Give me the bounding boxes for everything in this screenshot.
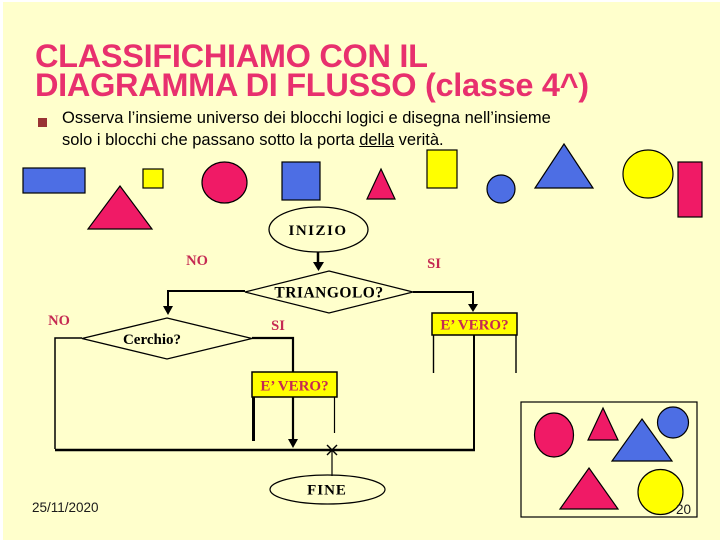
truth-gate-left-label: E’ VERO? <box>260 379 328 395</box>
decision2-no-label: NO <box>48 313 70 329</box>
connector-decision1-si <box>413 292 473 304</box>
universe-shape-magenta-rectangle <box>678 162 702 217</box>
flowchart-nodes <box>82 207 517 504</box>
result-shape-magenta-triangle-small <box>588 408 618 440</box>
slide-date: 25/11/2020 <box>32 500 99 515</box>
universe-shapes-row <box>23 144 702 229</box>
decision2-label: Cerchio? <box>123 332 181 348</box>
result-shape-magenta-triangle-large <box>560 468 618 509</box>
result-shape-blue-circle <box>658 407 689 438</box>
decision1-no-label: NO <box>186 253 208 269</box>
result-shape-magenta-circle <box>535 413 574 457</box>
connector-decision2-si <box>252 338 293 372</box>
universe-shape-blue-rectangle <box>23 168 85 193</box>
decision1-si-label: SI <box>427 256 441 272</box>
truth-gate-right-label: E’ VERO? <box>440 318 508 334</box>
universe-shape-blue-square <box>282 162 320 200</box>
universe-shape-magenta-triangle-large <box>88 186 152 229</box>
flowchart-canvas: INIZIO TRIANGOLO? Cerchio? NO SI NO SI E… <box>0 0 720 540</box>
flowchart-labels: INIZIO TRIANGOLO? Cerchio? NO SI NO SI E… <box>48 223 508 499</box>
decision2-si-label: SI <box>271 318 285 334</box>
universe-shape-blue-triangle <box>535 144 593 188</box>
universe-shape-yellow-square <box>143 169 163 188</box>
arrowhead-bottom-line <box>288 439 298 448</box>
decision1-label: TRIANGOLO? <box>274 285 383 302</box>
arrowhead-decision1 <box>313 262 324 271</box>
slide: CLASSIFICHIAMO CON IL DIAGRAMMA DI FLUSS… <box>0 0 720 540</box>
universe-shape-magenta-circle <box>202 162 247 203</box>
connector-decision2-no <box>55 338 82 449</box>
slide-edge-left <box>0 0 3 540</box>
connector-decision1-no <box>168 291 245 307</box>
universe-shape-yellow-rectangle <box>427 150 457 188</box>
result-box <box>521 402 697 517</box>
page-number: 20 <box>676 502 691 517</box>
end-label: FINE <box>307 483 347 499</box>
start-label: INIZIO <box>288 223 347 239</box>
arrowhead-decision2 <box>163 306 173 315</box>
universe-shape-yellow-circle <box>623 150 673 198</box>
universe-shape-blue-circle <box>487 175 515 203</box>
slide-edge-top <box>0 0 720 2</box>
arrowhead-gate-right <box>468 304 478 312</box>
universe-shape-magenta-triangle-small <box>367 169 395 199</box>
